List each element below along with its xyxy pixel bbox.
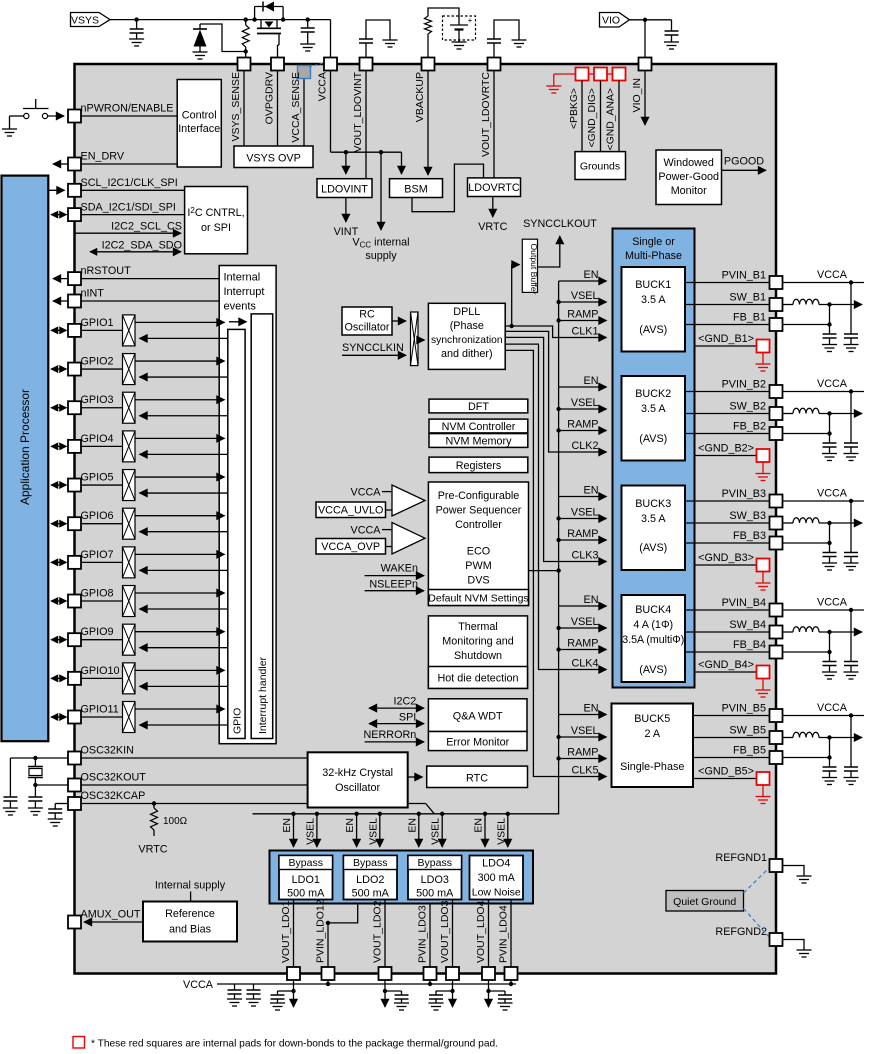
svg-text:<GND_B4>: <GND_B4>: [698, 659, 754, 671]
svg-text:VOUT_LDO2: VOUT_LDO2: [372, 900, 384, 963]
svg-text:SDA_I2C1/SDI_SPI: SDA_I2C1/SDI_SPI: [81, 201, 176, 213]
svg-text:events: events: [224, 301, 257, 313]
svg-text:LDO4: LDO4: [482, 858, 510, 870]
svg-text:VSEL: VSEL: [571, 397, 599, 409]
svg-text:3.5A (multiΦ): 3.5A (multiΦ): [622, 634, 684, 646]
svg-text:<GND_B5>: <GND_B5>: [698, 766, 754, 778]
svg-text:SW_B5: SW_B5: [729, 725, 766, 737]
svg-text:VCCA_UVLO: VCCA_UVLO: [318, 505, 383, 517]
svg-text:VOUT_LDOVINT: VOUT_LDOVINT: [352, 71, 364, 152]
svg-text:SW_B2: SW_B2: [729, 401, 766, 413]
svg-text:PVIN_LDO12: PVIN_LDO12: [315, 899, 327, 963]
svg-text:VCCA_SENSE: VCCA_SENSE: [290, 72, 302, 143]
svg-text:Hot die detection: Hot die detection: [437, 673, 518, 685]
svg-text:FB_B5: FB_B5: [733, 745, 766, 757]
svg-text:VSYS OVP: VSYS OVP: [246, 153, 301, 165]
svg-text:EN: EN: [281, 818, 293, 833]
svg-text:Q&A WDT: Q&A WDT: [453, 711, 503, 723]
svg-text:Bypass: Bypass: [289, 857, 323, 869]
svg-text:RAMP: RAMP: [567, 528, 598, 540]
svg-text:I2C2_SCL_CS: I2C2_SCL_CS: [111, 221, 182, 233]
svg-text:PVIN_B3: PVIN_B3: [722, 488, 766, 500]
svg-text:EN_DRV: EN_DRV: [81, 151, 125, 163]
svg-text:RAMP: RAMP: [567, 419, 598, 431]
svg-text:<GND_B3>: <GND_B3>: [698, 552, 754, 564]
svg-text:(AVS): (AVS): [639, 324, 667, 336]
svg-text:GPIO7: GPIO7: [81, 549, 114, 561]
svg-text:SW_B1: SW_B1: [729, 292, 766, 304]
svg-text:FB_B2: FB_B2: [733, 421, 766, 433]
svg-text:VCCA: VCCA: [183, 979, 214, 991]
svg-text:Multi-Phase: Multi-Phase: [625, 250, 682, 262]
svg-text:* These red squares are intern: * These red squares are internal pads fo…: [91, 1039, 498, 1050]
svg-text:and dither): and dither): [441, 348, 493, 360]
svg-text:VSEL: VSEL: [571, 616, 599, 628]
svg-text:GPIO8: GPIO8: [81, 588, 114, 600]
svg-text:GPIO11: GPIO11: [81, 704, 119, 716]
svg-text:BUCK1: BUCK1: [635, 279, 671, 291]
svg-text:Quiet Ground: Quiet Ground: [673, 896, 736, 908]
svg-text:GPIO9: GPIO9: [81, 626, 114, 638]
svg-text:Single or: Single or: [632, 236, 675, 248]
svg-text:300 mA: 300 mA: [478, 872, 516, 884]
svg-text:VCCA: VCCA: [351, 525, 382, 537]
svg-text:NVM Controller: NVM Controller: [442, 421, 516, 433]
svg-text:or SPI: or SPI: [201, 222, 231, 234]
svg-text:SW_B4: SW_B4: [729, 619, 766, 631]
svg-text:DFT: DFT: [468, 401, 489, 413]
svg-text:nRSTOUT: nRSTOUT: [81, 265, 132, 277]
svg-text:WAKEn: WAKEn: [381, 563, 418, 575]
svg-text:GPIO5: GPIO5: [81, 472, 114, 484]
svg-text:NSLEEPn: NSLEEPn: [369, 579, 418, 591]
svg-text:Reference: Reference: [165, 908, 215, 920]
svg-text:CLK5: CLK5: [571, 765, 598, 777]
svg-text:SW_B3: SW_B3: [729, 510, 766, 522]
svg-text:32-kHz Crystal: 32-kHz Crystal: [322, 767, 393, 779]
svg-text:(AVS): (AVS): [639, 664, 667, 676]
svg-text:Registers: Registers: [456, 460, 502, 472]
svg-text:DPLL: DPLL: [453, 306, 480, 318]
svg-text:(AVS): (AVS): [639, 433, 667, 445]
svg-text:VCCA: VCCA: [317, 72, 329, 101]
svg-text:DVS: DVS: [467, 575, 489, 587]
svg-text:LDOVINT: LDOVINT: [321, 184, 368, 196]
svg-text:Default NVM Settings: Default NVM Settings: [428, 593, 528, 605]
svg-text:I2C2: I2C2: [393, 696, 416, 708]
svg-text:CLK1: CLK1: [571, 326, 598, 338]
svg-text:I2C CNTRL,: I2C CNTRL,: [187, 206, 244, 219]
svg-text:VSEL: VSEL: [367, 818, 379, 845]
svg-text:VSEL: VSEL: [571, 507, 599, 519]
svg-text:PVIN_B2: PVIN_B2: [722, 379, 766, 391]
svg-text:VIO_IN: VIO_IN: [631, 78, 643, 112]
svg-text:(AVS): (AVS): [639, 542, 667, 554]
svg-text:VOUT_LDOVRTC: VOUT_LDOVRTC: [480, 72, 492, 157]
svg-text:<GND_ANA>: <GND_ANA>: [606, 88, 617, 150]
svg-text:Power-Good: Power-Good: [658, 171, 719, 183]
svg-text:RAMP: RAMP: [567, 309, 598, 321]
svg-text:Thermal: Thermal: [458, 621, 498, 633]
svg-text:BUCK4: BUCK4: [635, 604, 671, 616]
svg-text:+: +: [468, 16, 473, 25]
svg-text:supply: supply: [365, 250, 397, 262]
svg-text:SCL_I2C1/CLK_SPI: SCL_I2C1/CLK_SPI: [81, 177, 178, 189]
svg-text:EN: EN: [584, 594, 599, 606]
svg-text:GPIO1: GPIO1: [81, 317, 114, 329]
svg-text:SYNCCLKIN: SYNCCLKIN: [342, 342, 404, 354]
svg-text:NVM Memory: NVM Memory: [446, 436, 513, 448]
svg-text:GPIO6: GPIO6: [81, 510, 114, 522]
svg-text:VSEL: VSEL: [571, 290, 599, 302]
svg-text:3.5 A: 3.5 A: [641, 513, 666, 525]
svg-text:Bypass: Bypass: [418, 857, 452, 869]
svg-text:CLK3: CLK3: [571, 550, 598, 562]
svg-text:(Phase: (Phase: [450, 320, 484, 332]
svg-text:VSYS: VSYS: [71, 15, 99, 27]
svg-text:VIO: VIO: [602, 15, 620, 27]
svg-text:FB_B3: FB_B3: [733, 530, 766, 542]
svg-text:LDOVRTC: LDOVRTC: [468, 182, 520, 194]
svg-text:PGOOD: PGOOD: [724, 156, 764, 168]
svg-text:PVIN_B1: PVIN_B1: [722, 270, 766, 282]
svg-text:BUCK3: BUCK3: [635, 498, 671, 510]
svg-text:REFGND1: REFGND1: [715, 852, 767, 864]
svg-text:500 mA: 500 mA: [416, 888, 454, 900]
svg-text:500 mA: 500 mA: [352, 888, 390, 900]
svg-text:Internal supply: Internal supply: [155, 880, 226, 892]
svg-text:RAMP: RAMP: [567, 747, 598, 759]
svg-text:Bypass: Bypass: [353, 857, 387, 869]
svg-text:nPWRON/ENABLE: nPWRON/ENABLE: [81, 103, 174, 115]
svg-text:BSM: BSM: [404, 184, 427, 196]
svg-text:VSEL: VSEL: [304, 818, 316, 845]
svg-text:EN: EN: [584, 703, 599, 715]
svg-text:Oscillator: Oscillator: [345, 322, 390, 334]
svg-text:VCCA: VCCA: [351, 487, 382, 499]
svg-text:Control: Control: [182, 110, 217, 122]
svg-text:PVIN_B4: PVIN_B4: [722, 597, 766, 609]
svg-text:SYNCCLKOUT: SYNCCLKOUT: [523, 218, 597, 230]
svg-text:VSYS_SENSE: VSYS_SENSE: [230, 72, 242, 141]
svg-text:GPIO2: GPIO2: [81, 356, 114, 368]
svg-text:Monitor: Monitor: [671, 185, 707, 197]
svg-text:VOUT_LDO4: VOUT_LDO4: [475, 900, 487, 963]
svg-text:Pre-Configurable: Pre-Configurable: [438, 490, 520, 502]
svg-text:VSEL: VSEL: [571, 725, 599, 737]
svg-text:VOUT_LDO3: VOUT_LDO3: [439, 900, 451, 963]
svg-text:Low Noise: Low Noise: [472, 887, 521, 899]
svg-text:Internal: Internal: [224, 272, 261, 284]
svg-text:Application Processor: Application Processor: [18, 389, 32, 505]
svg-text:Interrupt: Interrupt: [224, 286, 265, 298]
svg-text:EN: EN: [584, 375, 599, 387]
svg-text:OSC32KCAP: OSC32KCAP: [81, 790, 146, 802]
svg-text:BUCK2: BUCK2: [635, 388, 671, 400]
svg-text:GPIO10: GPIO10: [81, 665, 120, 677]
svg-text:GPIO: GPIO: [232, 708, 244, 734]
svg-text:LDO3: LDO3: [421, 874, 449, 886]
svg-text:ECO: ECO: [467, 546, 490, 558]
svg-text:AMUX_OUT: AMUX_OUT: [81, 909, 141, 921]
svg-text:and Bias: and Bias: [169, 924, 212, 936]
svg-text:FB_B4: FB_B4: [733, 639, 766, 651]
svg-text:VCCA: VCCA: [817, 378, 848, 390]
svg-text:EN: EN: [584, 485, 599, 497]
svg-text:I2C2_SDA_SDO: I2C2_SDA_SDO: [102, 240, 182, 252]
svg-text:VOUT_LDO1: VOUT_LDO1: [280, 900, 292, 963]
svg-text:VSEL: VSEL: [430, 818, 442, 845]
svg-text:Monitoring and: Monitoring and: [442, 636, 513, 648]
svg-text:synchronization: synchronization: [431, 335, 503, 346]
svg-text:VCCA: VCCA: [817, 488, 848, 500]
svg-text:VCCA_OVP: VCCA_OVP: [321, 541, 380, 553]
svg-text:EN: EN: [406, 818, 418, 833]
svg-text:RTC: RTC: [466, 773, 488, 785]
svg-text:VCCA: VCCA: [817, 269, 848, 281]
svg-text:Oscillator: Oscillator: [335, 782, 380, 794]
svg-text:PVIN_LDO4: PVIN_LDO4: [498, 905, 510, 963]
svg-text:VCCA: VCCA: [817, 702, 848, 714]
svg-text:EN: EN: [584, 269, 599, 281]
svg-text:RC: RC: [359, 309, 375, 321]
svg-text:Grounds: Grounds: [580, 161, 620, 173]
svg-text:Output Buffer: Output Buffer: [529, 244, 539, 295]
svg-text:Shutdown: Shutdown: [454, 650, 502, 662]
svg-text:<GND_DIG>: <GND_DIG>: [587, 88, 598, 147]
svg-text:PVIN_LDO3: PVIN_LDO3: [417, 905, 429, 963]
svg-text:OVPGDRV: OVPGDRV: [264, 72, 276, 124]
svg-text:FB_B1: FB_B1: [733, 312, 766, 324]
svg-text:2 A: 2 A: [644, 728, 660, 740]
svg-text:VRTC: VRTC: [138, 844, 167, 856]
svg-text:GPIO3: GPIO3: [81, 394, 114, 406]
svg-text:nINT: nINT: [81, 288, 105, 300]
svg-text:<GND_B1>: <GND_B1>: [698, 333, 754, 345]
svg-text:Controller: Controller: [455, 519, 502, 531]
svg-text:OSC32KIN: OSC32KIN: [81, 745, 134, 757]
svg-text:EN: EN: [473, 818, 485, 833]
svg-text:Error Monitor: Error Monitor: [446, 737, 509, 749]
svg-text:CLK2: CLK2: [571, 440, 598, 452]
svg-text:VSEL: VSEL: [495, 818, 507, 845]
svg-text:PVIN_B5: PVIN_B5: [722, 703, 766, 715]
svg-text:Windowed: Windowed: [663, 157, 713, 169]
svg-text:BUCK5: BUCK5: [634, 713, 670, 725]
svg-text:VCCA: VCCA: [817, 597, 848, 609]
svg-text:Interface: Interface: [178, 123, 220, 135]
svg-text:VRTC: VRTC: [478, 221, 507, 233]
svg-text:EN: EN: [344, 818, 356, 833]
svg-text:Power Sequencer: Power Sequencer: [436, 505, 522, 517]
svg-text:VINT: VINT: [334, 226, 359, 238]
svg-text:<PBKG>: <PBKG>: [569, 88, 580, 129]
svg-text:LDO2: LDO2: [356, 874, 384, 886]
svg-text:PWM: PWM: [465, 560, 491, 572]
svg-text:SPI: SPI: [399, 712, 416, 724]
svg-text:Interrupt handler: Interrupt handler: [257, 656, 269, 734]
svg-text:Single-Phase: Single-Phase: [620, 761, 684, 773]
svg-text:LDO1: LDO1: [292, 874, 320, 886]
svg-text:GPIO4: GPIO4: [81, 433, 114, 445]
svg-text:100Ω: 100Ω: [163, 816, 188, 827]
svg-text:<GND_B2>: <GND_B2>: [698, 443, 754, 455]
svg-text:OSC32KOUT: OSC32KOUT: [81, 772, 147, 784]
svg-text:CLK4: CLK4: [571, 658, 598, 670]
svg-text:VBACKUP: VBACKUP: [414, 72, 426, 122]
svg-text:4 A (1Φ): 4 A (1Φ): [633, 619, 673, 631]
svg-text:NERRORn: NERRORn: [364, 729, 417, 741]
svg-text:REFGND2: REFGND2: [715, 926, 767, 938]
svg-text:3.5 A: 3.5 A: [641, 294, 666, 306]
svg-text:500 mA: 500 mA: [287, 888, 325, 900]
svg-text:3.5 A: 3.5 A: [641, 403, 666, 415]
svg-text:RAMP: RAMP: [567, 638, 598, 650]
